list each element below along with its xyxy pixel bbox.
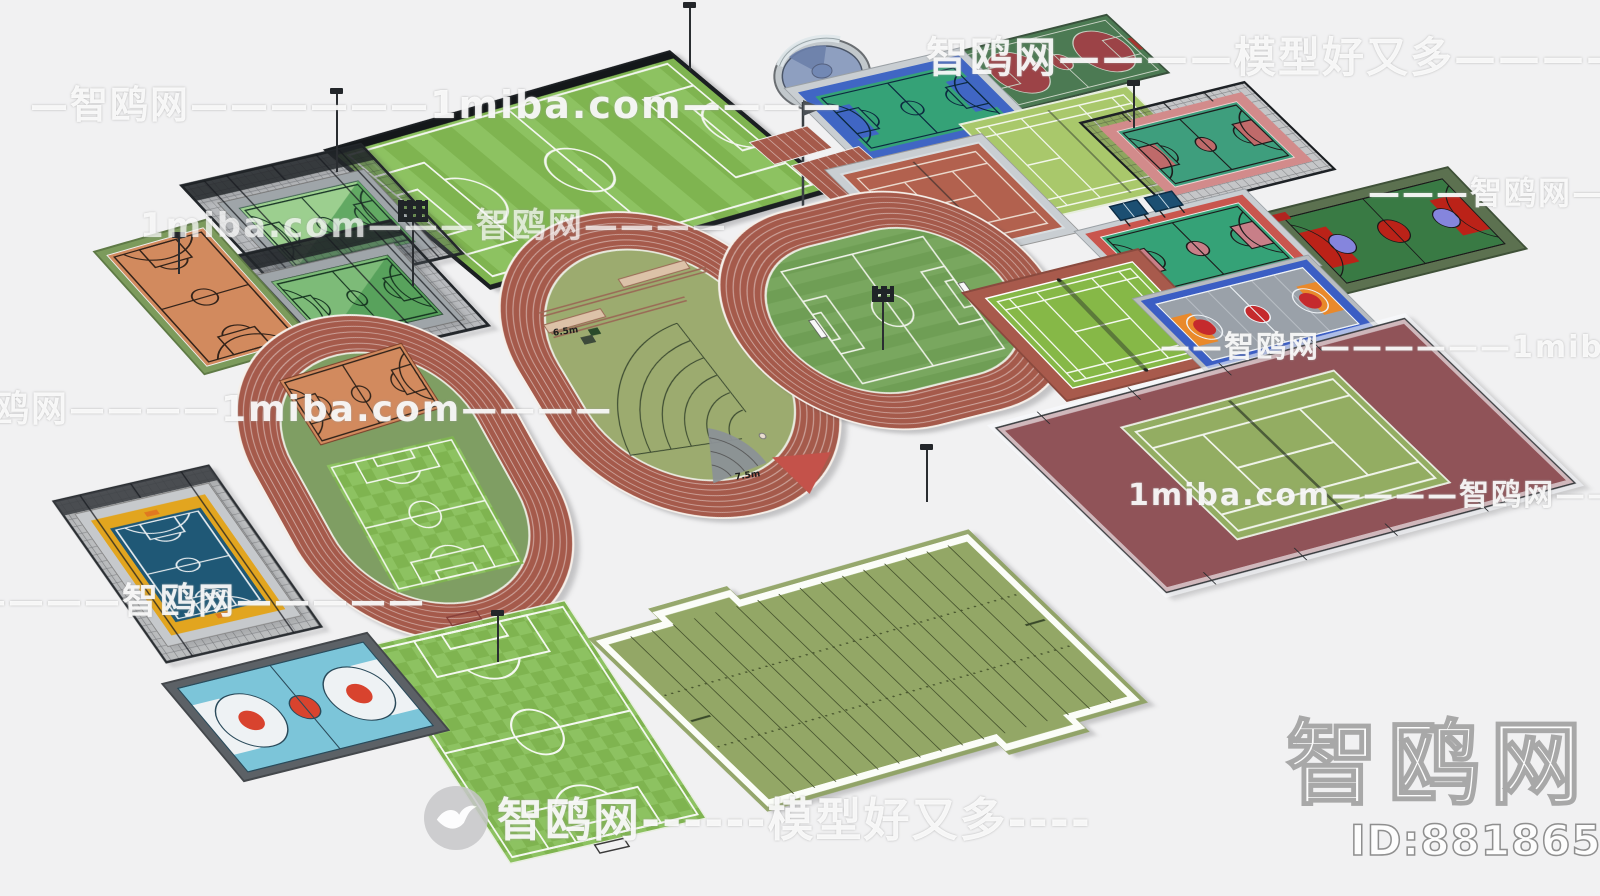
watermark-row: 1miba.com————智鸥网——— bbox=[1128, 470, 1600, 514]
seagull-logo-icon bbox=[424, 786, 488, 850]
floodlight-icon bbox=[926, 444, 933, 502]
floodlight-icon bbox=[689, 2, 696, 70]
watermark-row: 智鸥网————1miba.com———— bbox=[0, 380, 613, 432]
floodlight-icon bbox=[1133, 80, 1140, 128]
watermark-row: —智鸥网——————1miba.com———— bbox=[30, 74, 843, 129]
watermark-row: 1miba.com———智鸥网———— bbox=[140, 198, 728, 247]
watermark-row: 智鸥网------模型好又多---- bbox=[497, 784, 1092, 850]
site-logo-text: 智鸥网 bbox=[1286, 690, 1592, 823]
stadium-light-tower-icon bbox=[872, 286, 894, 350]
watermark-row: ——智鸥网——————1miba.com bbox=[1160, 322, 1600, 366]
model-id-text: ID:881865988 bbox=[1350, 816, 1600, 865]
watermark-row: ———智鸥网——— bbox=[1368, 168, 1600, 214]
watermark-row: ————智鸥网————— bbox=[0, 572, 426, 624]
watermark-row: 智鸥网————模型好又多———— bbox=[926, 24, 1600, 85]
floodlight-icon bbox=[497, 610, 504, 662]
model-showcase-scene: 6.5m 7.5m —智鸥网——————1miba.com———— 智鸥网———… bbox=[0, 0, 1600, 896]
